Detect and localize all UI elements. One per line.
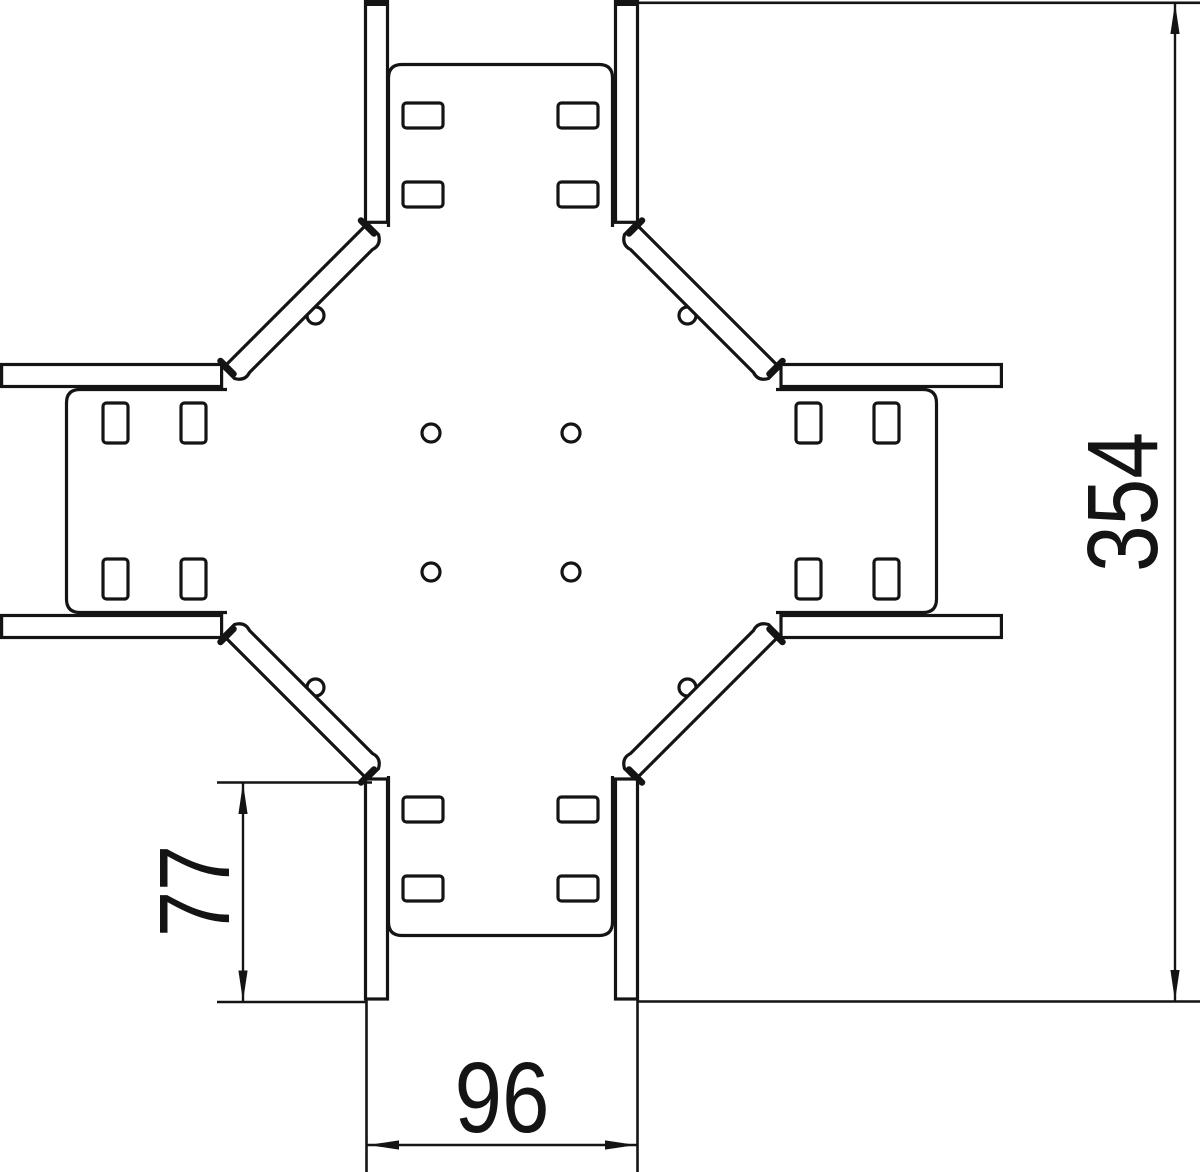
tray-outline-left-arm xyxy=(67,390,228,613)
dimension-value-end-width: 96 xyxy=(455,1042,550,1154)
rail-top-arm-left xyxy=(366,2,388,223)
slot xyxy=(796,403,821,443)
chamfer-rivets xyxy=(307,307,696,696)
rail-end-caps xyxy=(364,0,639,6)
arrowhead-up xyxy=(1170,3,1179,34)
slot xyxy=(403,797,443,822)
chamfer-rail-bottom-left xyxy=(224,624,380,780)
cross-piece-plan-view: 354 77 96 xyxy=(0,0,1200,1172)
dimension-value-branch-length: 77 xyxy=(139,845,251,937)
tray-outlines xyxy=(67,65,937,936)
rail-left-arm-bottom xyxy=(2,616,222,638)
rail-right-arm-bottom xyxy=(781,616,1001,638)
slot xyxy=(103,559,128,599)
arrowhead-right xyxy=(605,1140,636,1149)
slot xyxy=(874,559,899,599)
rail-top-arm-right xyxy=(616,2,638,223)
slot xyxy=(103,403,128,443)
arrowhead-left xyxy=(368,1140,399,1149)
center-hole xyxy=(562,563,580,581)
rail-bottom-arm-right xyxy=(616,779,638,999)
center-holes xyxy=(422,424,580,581)
slot xyxy=(796,559,821,599)
chamfer-rail-top-right xyxy=(624,224,780,380)
rail-end-cap xyxy=(614,0,639,6)
rail-right-arm-top xyxy=(781,365,1001,387)
tray-outline-right-arm xyxy=(776,390,937,613)
slot xyxy=(558,103,598,128)
arrowhead-down xyxy=(238,971,247,1002)
arrowhead-down xyxy=(1170,970,1179,1001)
tray-outline-top-arm xyxy=(389,65,613,228)
slot xyxy=(403,876,443,901)
center-hole xyxy=(562,424,580,442)
center-hole xyxy=(422,424,440,442)
center-hole xyxy=(422,563,440,581)
slot xyxy=(403,103,443,128)
rail-end-cap xyxy=(364,0,389,6)
slot xyxy=(181,403,206,443)
dimension-overall-length: 354 xyxy=(638,3,1200,1002)
arrowhead-up xyxy=(238,783,247,814)
slot xyxy=(558,797,598,822)
chamfer-rail-top-left xyxy=(224,224,380,380)
technical-drawing-page: 354 77 96 xyxy=(0,0,1200,1172)
slot xyxy=(874,403,899,443)
chamfer-rail-bottom-right xyxy=(624,624,780,780)
dimension-branch-length: 77 xyxy=(139,783,372,1003)
slot xyxy=(558,182,598,207)
slot xyxy=(181,559,206,599)
chamfer-rails xyxy=(224,224,780,780)
slot xyxy=(403,182,443,207)
slot xyxy=(558,876,598,901)
rail-left-arm-top xyxy=(2,365,222,387)
dimension-value-overall-length: 354 xyxy=(1067,432,1179,572)
tray-outline-bottom-arm xyxy=(389,776,613,936)
rail-bottom-arm-left xyxy=(366,779,388,999)
dimension-end-width: 96 xyxy=(367,1000,638,1172)
